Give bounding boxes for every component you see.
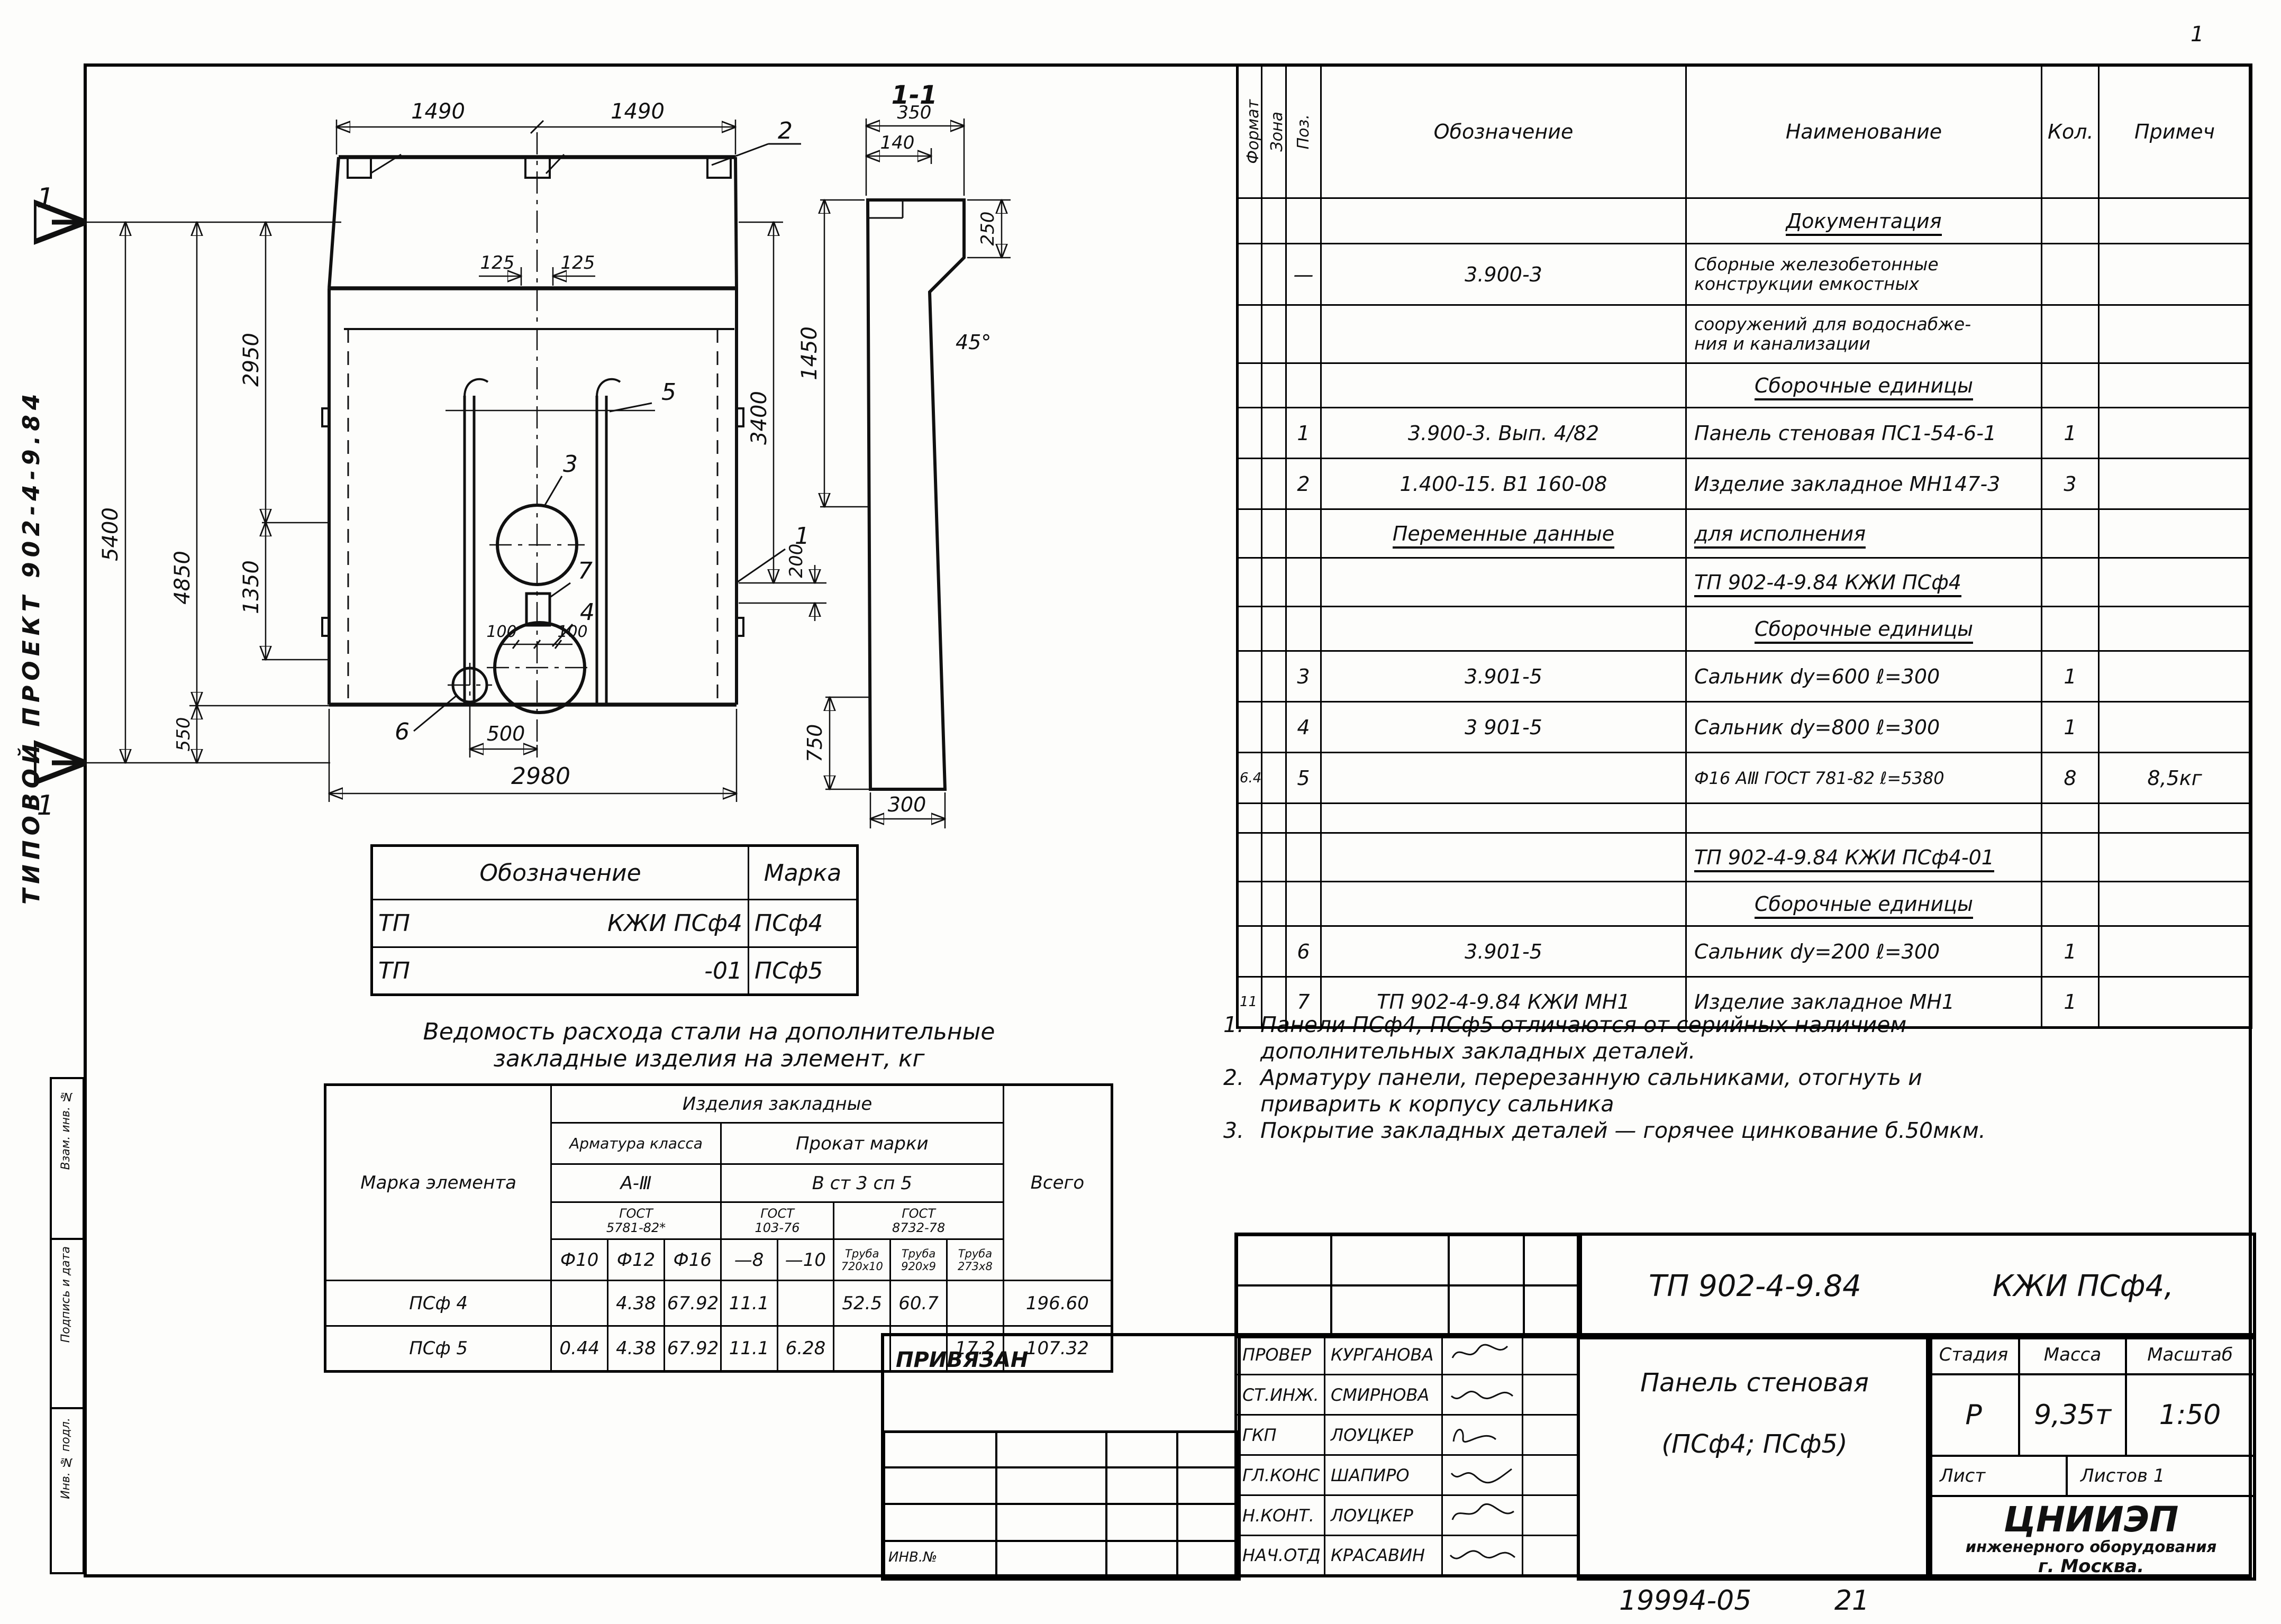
signer-role: ГЛ.КОНС (1236, 1455, 1325, 1495)
svg-text:3400: 3400 (747, 391, 771, 445)
steel-prokat-header: Прокат марки (721, 1123, 1003, 1164)
spec-cell (1286, 833, 1321, 882)
steel-marka-cell: ПСф 5 (325, 1326, 551, 1372)
svg-text:4850: 4850 (170, 551, 195, 605)
spec-cell (1686, 804, 2042, 833)
spec-cell (1238, 804, 1262, 833)
note-item: 3. Покрытие закладных деталей — горячее … (1223, 1117, 2218, 1144)
steel-data-row: ПСф 4 4.38 67.92 11.1 52.5 60.7 196.60 (325, 1281, 1112, 1326)
spec-cell: 6.4 (1238, 753, 1262, 804)
signer-role: СТ.ИНЖ. (1236, 1375, 1325, 1415)
signature-row: Н.КОНТ. ЛОУЦКЕР (1236, 1495, 1578, 1536)
spec-cell (1321, 305, 1686, 363)
steel-title-line2: закладные изделия на элемент, кг (286, 1045, 1132, 1072)
steel-val: 11.1 (721, 1326, 777, 1372)
spec-row: ТП 902-4-9.84 КЖИ ПСф4-01 (1238, 833, 2251, 882)
signature-cell (1442, 1455, 1523, 1495)
spec-cell: 1 (2042, 408, 2099, 459)
spec-row: Переменные данные для исполнения (1238, 509, 2251, 558)
attached-grid-cell (1177, 1430, 1238, 1467)
signer-name: ШАПИРО (1325, 1455, 1442, 1495)
mark-obozn-right: КЖИ ПСф4 (607, 910, 742, 937)
attached-grid-cell (1177, 1541, 1238, 1578)
stage-label: Стадия (1929, 1336, 2020, 1373)
spec-cell: Панель стеновая ПС1-54-6-1 (1686, 408, 2042, 459)
signature-cell (1442, 1335, 1523, 1375)
spec-cell (1238, 558, 1262, 607)
spec-cell: 3.901-5 (1321, 651, 1686, 702)
spec-cell (1262, 926, 1286, 977)
dim-right: 3400 200 (739, 222, 826, 621)
steel-val: 11.1 (721, 1281, 777, 1326)
title-code-band: ТП 902-4-9.84 КЖИ ПСф4, (1577, 1233, 2256, 1339)
org-name: ЦНИИЭП (1929, 1499, 2253, 1540)
signature-row: СТ.ИНЖ. СМИРНОВА (1236, 1375, 1578, 1415)
steel-col: Труба 920х9 (890, 1239, 947, 1281)
spec-cell (1262, 408, 1286, 459)
spec-header-kol: Кол. (2042, 65, 2099, 198)
spec-header-row: Формат Зона Поз. Обозначение Наименовани… (1238, 65, 2251, 198)
note-text: Арматуру панели, перерезанную сальниками… (1260, 1064, 1922, 1117)
spec-header-primech: Примеч (2099, 65, 2251, 198)
attached-grid-cell (1177, 1467, 1238, 1504)
attached-grid-cell (1106, 1430, 1177, 1467)
spec-cell (2099, 558, 2251, 607)
spec-cell: 3.900-3 (1321, 244, 1686, 305)
mark-obozn-left: ТП (378, 910, 410, 937)
attached-grid-cell (1106, 1504, 1177, 1541)
scale-value: 1:50 (2127, 1375, 2253, 1455)
sheet-label: Лист (1929, 1457, 2068, 1495)
steel-col: Труба 273х8 (947, 1239, 1003, 1281)
steel-gost1: ГОСТ 5781-82* (551, 1202, 721, 1239)
doc-code-suffix: КЖИ ПСф4, (1993, 1269, 2174, 1303)
gost-number: 103-76 (724, 1221, 831, 1235)
specification-table: Формат Зона Поз. Обозначение Наименовани… (1236, 63, 2252, 1029)
spec-cell: 1 (2042, 702, 2099, 753)
revision-cell (1524, 1285, 1579, 1336)
spec-cell (1238, 408, 1262, 459)
svg-text:5: 5 (661, 379, 676, 406)
stamp-cell-label: Инв. № подл. (59, 1418, 72, 1499)
sheet-row: Лист Листов 1 (1929, 1457, 2253, 1497)
spec-cell (1321, 882, 1686, 926)
spec-cell: 1 (2042, 926, 2099, 977)
signature-cell (1442, 1536, 1523, 1576)
footer-sheet: 21 (1834, 1585, 1869, 1617)
signature-scribble (1448, 1380, 1517, 1406)
gost-word: ГОСТ (724, 1207, 831, 1220)
steel-col: —8 (721, 1239, 777, 1281)
organization-block: ЦНИИЭП инженерного оборудования г. Москв… (1929, 1499, 2253, 1579)
spec-cell: 1 (2042, 651, 2099, 702)
signer-name: КУРГАНОВА (1325, 1335, 1442, 1375)
attached-cell: ПРИВЯЗАН (884, 1336, 1238, 1433)
spec-cell (1286, 558, 1321, 607)
spec-cell (1286, 804, 1321, 833)
svg-text:750: 750 (803, 724, 826, 763)
mark-table-row: ТП КЖИ ПСф4 ПСф4 (372, 900, 858, 947)
panel-body (322, 132, 743, 745)
section-cut-marks: 1 1 (37, 183, 84, 822)
spec-row: 4 3 901-5 Сальник dу=800 ℓ=300 1 (1238, 702, 2251, 753)
spec-section-title: Сборочные единицы (1755, 617, 1973, 644)
spec-cell (1262, 804, 1286, 833)
steel-vsego-header: Всего (1003, 1085, 1112, 1281)
steel-val (551, 1281, 608, 1326)
spec-cell (1321, 804, 1686, 833)
svg-text:550: 550 (173, 717, 194, 752)
spec-cell (2042, 305, 2099, 363)
signature-date-cell (1523, 1335, 1578, 1375)
spec-cell (1262, 882, 1286, 926)
spec-cell: 6 (1286, 926, 1321, 977)
signature-date-cell (1523, 1415, 1578, 1455)
embed-notch-left (348, 157, 371, 178)
spec-cell (1238, 198, 1262, 244)
spec-naim-line: конструкции емкостных (1694, 275, 2035, 294)
spec-cell (2042, 198, 2099, 244)
stamp-cell: Инв. № подл. (50, 1407, 85, 1574)
note-line: Арматуру панели, перерезанную сальниками… (1260, 1064, 1922, 1091)
steel-header-row: Марка элемента Изделия закладные Всего (325, 1085, 1112, 1123)
spec-cell (1262, 305, 1286, 363)
spec-cell: 2 (1286, 459, 1321, 509)
spec-cell: сооружений для водоснабже- ния и канализ… (1686, 305, 2042, 363)
svg-text:2980: 2980 (511, 763, 570, 790)
signer-role: Н.КОНТ. (1236, 1495, 1325, 1536)
attached-grid-cell (996, 1430, 1106, 1467)
spec-header-zona: Зона (1262, 65, 1286, 198)
spec-header-poz: Поз. (1286, 65, 1321, 198)
spec-cell: Сборочные единицы (1686, 607, 2042, 651)
steel-gost3: ГОСТ 8732-78 (834, 1202, 1003, 1239)
spec-cell: 3.901-5 (1321, 926, 1686, 977)
spec-cell (2099, 833, 2251, 882)
rebar-bars (446, 379, 655, 705)
signer-role: ГКП (1236, 1415, 1325, 1455)
spec-cell (1262, 244, 1286, 305)
drawing-sheet: 1 ТИПОВОЙ ПРОЕКТ 902-4-9.84 Взам. инв. №… (0, 0, 2281, 1624)
panel-top-band (329, 157, 737, 329)
spec-cell: Сальник dу=800 ℓ=300 (1686, 702, 2042, 753)
attached-grid-cell (884, 1504, 996, 1541)
attached-grid: ИНВ.№ (884, 1430, 1238, 1577)
svg-text:125: 125 (480, 252, 515, 273)
revision-cell (1449, 1235, 1524, 1285)
corner-sheet-number: 1 (2191, 22, 2204, 47)
spec-cell (1286, 882, 1321, 926)
stamp-cell: Подпись и дата (50, 1236, 85, 1409)
scale-label: Масштаб (2127, 1336, 2253, 1373)
spec-cell (2042, 804, 2099, 833)
spec-naim-line: сооружений для водоснабже- (1694, 315, 2035, 334)
svg-text:100: 100 (486, 623, 516, 641)
footer-inventory-number: 19994-05 21 (1619, 1585, 1869, 1617)
spec-cell: 8,5кг (2099, 753, 2251, 804)
spec-cell (2042, 833, 2099, 882)
drawing-name-line1: Панель стеновая (1580, 1368, 1929, 1398)
svg-text:2950: 2950 (239, 333, 263, 387)
svg-text:350: 350 (897, 102, 932, 123)
spec-section-title: для исполнения (1694, 522, 1866, 549)
spec-cell: 3 (2042, 459, 2099, 509)
spec-cell: 11 (1238, 977, 1262, 1028)
spec-cell (2042, 558, 2099, 607)
steel-col: Ф16 (664, 1239, 721, 1281)
revision-grid (1234, 1233, 1582, 1338)
spec-cell (2099, 305, 2251, 363)
spec-cell: ТП 902-4-9.84 КЖИ ПСф4 (1686, 558, 2042, 607)
steel-gost2: ГОСТ 103-76 (721, 1202, 834, 1239)
svg-text:45°: 45° (956, 331, 991, 354)
spec-cell (1286, 198, 1321, 244)
margin-stamp-column: Взам. инв. № Подпись и дата Инв. № подл. (50, 1077, 84, 1576)
steel-val (777, 1281, 834, 1326)
stage-value: Р (1929, 1375, 2020, 1455)
svg-text:1: 1 (37, 790, 54, 822)
sms-header-row: Стадия Масса Масштаб (1929, 1336, 2253, 1375)
sheets-label: Листов 1 (2068, 1457, 2253, 1495)
svg-text:500: 500 (487, 722, 525, 745)
spec-row: Сборочные единицы (1238, 363, 2251, 408)
steel-col: —10 (777, 1239, 834, 1281)
spec-cell: — (1286, 244, 1321, 305)
signer-name: ЛОУЦКЕР (1325, 1415, 1442, 1455)
steel-table-title: Ведомость расхода стали на дополнительны… (286, 1018, 1132, 1072)
spec-cell (1262, 977, 1286, 1028)
signature-date-cell (1523, 1536, 1578, 1576)
svg-text:1: 1 (795, 523, 810, 550)
embed-notch-right (707, 157, 731, 178)
steel-col: Труба 720х10 (834, 1239, 890, 1281)
spec-cell (1286, 607, 1321, 651)
steel-armatura-header: Арматура класса (551, 1123, 721, 1164)
mark-obozn-right: -01 (704, 957, 742, 984)
spec-cell (1262, 702, 1286, 753)
sms-value-row: Р 9,35т 1:50 (1929, 1375, 2253, 1457)
spec-cell (1262, 509, 1286, 558)
spec-cell (2099, 459, 2251, 509)
mark-obozn-cell: ТП КЖИ ПСф4 (372, 900, 749, 947)
signature-row: ГКП ЛОУЦКЕР (1236, 1415, 1578, 1455)
attached-grid-cell (996, 1504, 1106, 1541)
spec-cell (1238, 459, 1262, 509)
signature-date-cell (1523, 1495, 1578, 1536)
spec-cell: Сальник dу=200 ℓ=300 (1686, 926, 2042, 977)
section-wall-outline (868, 200, 964, 789)
spec-cell (1262, 833, 1286, 882)
spec-cell: для исполнения (1686, 509, 2042, 558)
svg-text:250: 250 (977, 212, 998, 246)
signer-role: ПРОВЕР (1236, 1335, 1325, 1375)
panel-elevation-drawing: 100 100 1490 1490 125 125 (32, 74, 1243, 857)
dim-bottom: 2980 500 (329, 707, 737, 802)
spec-row: ТП 902-4-9.84 КЖИ ПСф4 (1238, 558, 2251, 607)
spec-row (1238, 804, 2251, 833)
spec-row: 6.4 5 Ф16 АⅢ ГОСТ 781-82 ℓ=5380 8 8,5кг (1238, 753, 2251, 804)
spec-cell (1286, 509, 1321, 558)
signature-scribble (1448, 1420, 1517, 1446)
spec-cell (1286, 305, 1321, 363)
spec-cell (1262, 363, 1286, 408)
org-descr: инженерного оборудования (1929, 1538, 2253, 1556)
spec-cell (2099, 244, 2251, 305)
stamp-cell: Взам. инв. № (50, 1077, 85, 1240)
callouts: 2 5 3 7 4 1 6 (370, 117, 810, 745)
signature-row: НАЧ.ОТД КРАСАВИН (1236, 1536, 1578, 1576)
svg-text:1350: 1350 (239, 560, 263, 614)
svg-text:4: 4 (580, 599, 595, 626)
mark-table: Обозначение Марка ТП КЖИ ПСф4 ПСф4 ТП -0… (370, 844, 859, 996)
dim-top-widths: 1490 1490 (337, 99, 735, 154)
signature-table: ПРОВЕР КУРГАНОВА СТ.ИНЖ. СМИРНОВА ГКП ЛО… (1234, 1333, 1579, 1577)
spec-cell: Сборные железобетонные конструкции емкос… (1686, 244, 2042, 305)
spec-cell (2099, 509, 2251, 558)
mark-marka-cell: ПСф4 (749, 900, 858, 947)
steel-col: Ф12 (608, 1239, 665, 1281)
signature-scribble (1448, 1340, 1517, 1365)
steel-val: 6.28 (777, 1326, 834, 1372)
steel-title-line1: Ведомость расхода стали на дополнительны… (286, 1018, 1132, 1045)
steel-val: 67.92 (664, 1281, 721, 1326)
mark-obozn-left: ТП (378, 957, 410, 984)
mass-value: 9,35т (2020, 1375, 2127, 1455)
attached-grid-cell (996, 1467, 1106, 1504)
spec-row: Документация (1238, 198, 2251, 244)
spec-cell: 3 901-5 (1321, 702, 1686, 753)
inventory-number-cell: ИНВ.№ (884, 1541, 996, 1578)
spec-cell (1238, 833, 1262, 882)
spec-section-title: ТП 902-4-9.84 КЖИ ПСф4-01 (1694, 846, 1994, 872)
notes-block: 1. Панели ПСф4, ПСф5 отличаются от серий… (1223, 1011, 2218, 1144)
spec-cell (1321, 833, 1686, 882)
embed-mn1 (526, 594, 550, 625)
stage-mass-scale-block: Стадия Масса Масштаб Р 9,35т 1:50 Лист Л… (1926, 1333, 2256, 1581)
spec-cell (1286, 363, 1321, 408)
note-line: дополнительных закладных деталей. (1260, 1038, 1906, 1064)
svg-text:5400: 5400 (98, 507, 123, 561)
spec-cell: Изделие закладное МН1 (1686, 977, 2042, 1028)
gland-openings (448, 505, 593, 713)
steel-val: 4.38 (608, 1326, 665, 1372)
spec-cell (1238, 882, 1262, 926)
svg-text:6: 6 (395, 718, 410, 745)
drawing-name-block: Панель стеновая (ПСф4; ПСф5) (1577, 1333, 1932, 1581)
spec-cell (1321, 363, 1686, 408)
dim-left-chains: 5400 4850 550 2950 1350 (79, 222, 341, 763)
steel-table: Марка элемента Изделия закладные Всего А… (324, 1083, 1113, 1373)
spec-cell: Сальник dу=600 ℓ=300 (1686, 651, 2042, 702)
spec-header-label: Поз. (1294, 114, 1313, 149)
steel-val (947, 1281, 1003, 1326)
mark-table-row: ТП -01 ПСф5 (372, 947, 858, 995)
spec-header-label: Формат (1244, 99, 1262, 164)
spec-cell (1238, 244, 1262, 305)
spec-cell: Изделие закладное МН147-3 (1686, 459, 2042, 509)
spec-cell (1238, 305, 1262, 363)
spec-row: 3 3.901-5 Сальник dу=600 ℓ=300 1 (1238, 651, 2251, 702)
signature-row: ПРОВЕР КУРГАНОВА (1236, 1335, 1578, 1375)
spec-cell (2042, 882, 2099, 926)
spec-cell (1262, 558, 1286, 607)
spec-naim-line: ния и канализации (1694, 334, 2035, 353)
section-1-1: 1-1 350 140 250 45° 1450 (797, 80, 1011, 828)
steel-val: 0.44 (551, 1326, 608, 1372)
signature-date-cell (1523, 1375, 1578, 1415)
steel-marka-header: Марка элемента (325, 1085, 551, 1281)
spec-cell: 3 (1286, 651, 1321, 702)
footer-number: 19994-05 (1619, 1585, 1751, 1617)
spec-cell (1262, 753, 1286, 804)
spec-header-naimenovanie: Наименование (1686, 65, 2042, 198)
spec-cell (1238, 509, 1262, 558)
note-line: Покрытие закладных деталей — горячее цин… (1260, 1117, 1986, 1144)
signature-scribble (1448, 1501, 1517, 1526)
spec-cell: 1.400-15. В1 160-08 (1321, 459, 1686, 509)
attached-block: ПРИВЯЗАН ИНВ.№ (881, 1333, 1241, 1581)
org-city: г. Москва. (1929, 1556, 2253, 1577)
attached-grid-cell (884, 1467, 996, 1504)
revision-cell (1449, 1285, 1524, 1336)
signer-role: НАЧ.ОТД (1236, 1536, 1325, 1576)
spec-cell (1262, 607, 1286, 651)
spec-row: 11 7 ТП 902-4-9.84 КЖИ МН1 Изделие закла… (1238, 977, 2251, 1028)
revision-cell (1331, 1285, 1449, 1336)
spec-cell: Сборочные единицы (1686, 882, 2042, 926)
attached-grid-cell (996, 1541, 1106, 1578)
signature-row: ГЛ.КОНС ШАПИРО (1236, 1455, 1578, 1495)
spec-cell: Документация (1686, 198, 2042, 244)
mark-table-header: Обозначение Марка (372, 846, 858, 900)
svg-text:1490: 1490 (611, 99, 665, 124)
spec-cell (1238, 702, 1262, 753)
spec-row: 2 1.400-15. В1 160-08 Изделие закладное … (1238, 459, 2251, 509)
svg-text:300: 300 (888, 793, 926, 816)
mark-marka-cell: ПСф5 (749, 947, 858, 995)
spec-header-label: Зона (1268, 112, 1286, 152)
spec-section-title: ТП 902-4-9.84 КЖИ ПСф4 (1694, 571, 1961, 597)
spec-cell (2099, 977, 2251, 1028)
attached-grid-cell (1177, 1504, 1238, 1541)
spec-section-title: Переменные данные (1393, 522, 1614, 549)
steel-col: Ф10 (551, 1239, 608, 1281)
signature-cell (1442, 1495, 1523, 1536)
signature-cell (1442, 1415, 1523, 1455)
spec-cell (2099, 198, 2251, 244)
spec-cell: 1 (1286, 408, 1321, 459)
spec-cell: 3.900-3. Вып. 4/82 (1321, 408, 1686, 459)
mark-header-marka: Марка (749, 846, 858, 900)
spec-cell: Сборочные единицы (1686, 363, 2042, 408)
steel-class-header: А-Ⅲ (551, 1164, 721, 1202)
mark-obozn-cell: ТП -01 (372, 947, 749, 995)
spec-section-title: Сборочные единицы (1755, 892, 1973, 919)
spec-cell (2099, 651, 2251, 702)
spec-cell: 7 (1286, 977, 1321, 1028)
spec-cell: Переменные данные (1321, 509, 1686, 558)
spec-naim-line: Сборные железобетонные (1694, 255, 2035, 274)
signature-date-cell (1523, 1455, 1578, 1495)
svg-text:125: 125 (561, 252, 595, 273)
gost-word: ГОСТ (554, 1207, 717, 1220)
spec-row: — 3.900-3 Сборные железобетонные констру… (1238, 244, 2251, 305)
svg-text:1: 1 (37, 183, 54, 214)
stamp-cell-label: Взам. инв. № (59, 1090, 72, 1170)
steel-val: 67.92 (664, 1326, 721, 1372)
note-item: 2. Арматуру панели, перерезанную сальник… (1223, 1064, 2218, 1117)
spec-cell (1238, 607, 1262, 651)
